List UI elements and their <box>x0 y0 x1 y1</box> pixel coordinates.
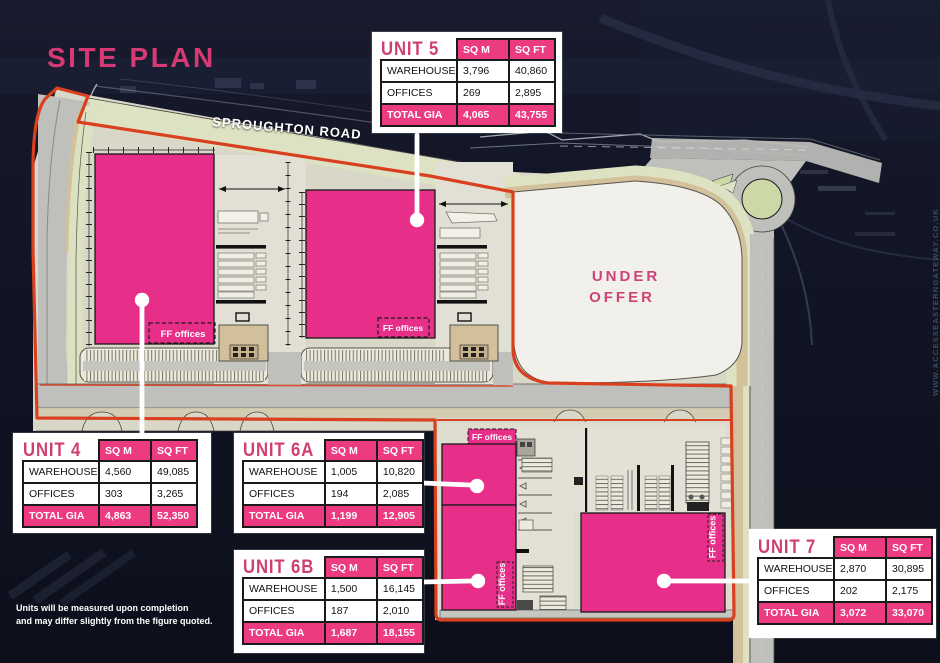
svg-text:OFFER: OFFER <box>589 289 655 306</box>
svg-text:FF offices: FF offices <box>497 563 507 606</box>
svg-text:UNDER: UNDER <box>592 268 660 285</box>
svg-text:FF offices: FF offices <box>472 432 512 442</box>
svg-text:FF offices: FF offices <box>161 329 206 340</box>
svg-text:FF offices: FF offices <box>708 516 718 559</box>
svg-text:FF offices: FF offices <box>383 323 423 333</box>
